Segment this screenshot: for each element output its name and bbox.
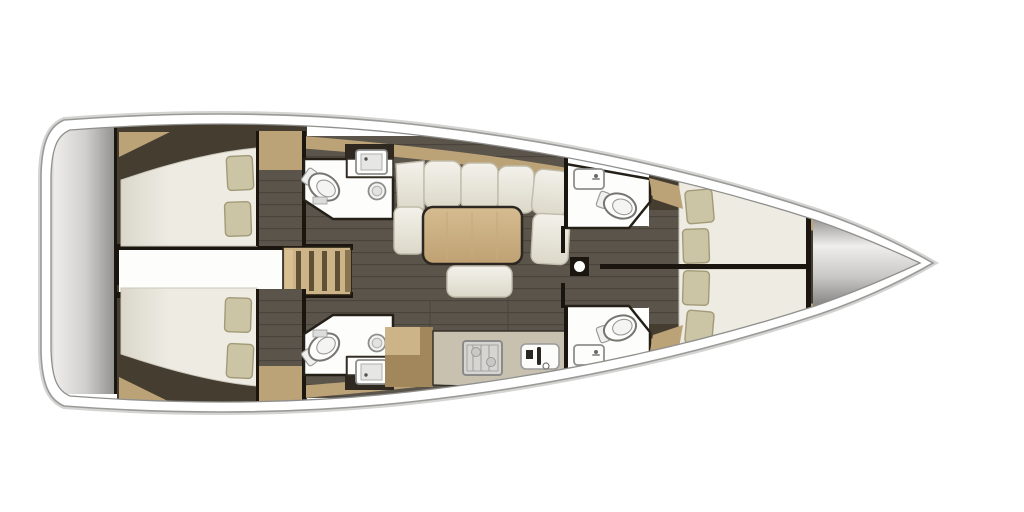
cabin-floor (259, 170, 303, 246)
foyer-wall (561, 283, 565, 308)
wardrobe (259, 366, 303, 404)
settee-back-cushion (461, 163, 498, 210)
vberth-divider (600, 264, 810, 269)
yacht-floor-plan (0, 0, 1024, 512)
interior (46, 120, 928, 410)
floor-plan-svg (0, 0, 1024, 512)
sink-icon (574, 169, 604, 189)
saloon-bulkhead (564, 155, 568, 228)
foyer-wall (561, 226, 565, 253)
settee-corner-cushion (396, 161, 424, 211)
settee-back-cushion (424, 161, 461, 208)
mast-post (570, 257, 589, 276)
swim-platform (46, 122, 119, 394)
stove-icon (463, 341, 502, 375)
saloon-bench (447, 266, 512, 297)
cabin-floor (259, 289, 303, 366)
settee-seat-cushion (394, 207, 424, 254)
wardrobe (259, 131, 303, 170)
companionway-steps (283, 247, 351, 295)
bow-bulkhead (806, 213, 811, 321)
